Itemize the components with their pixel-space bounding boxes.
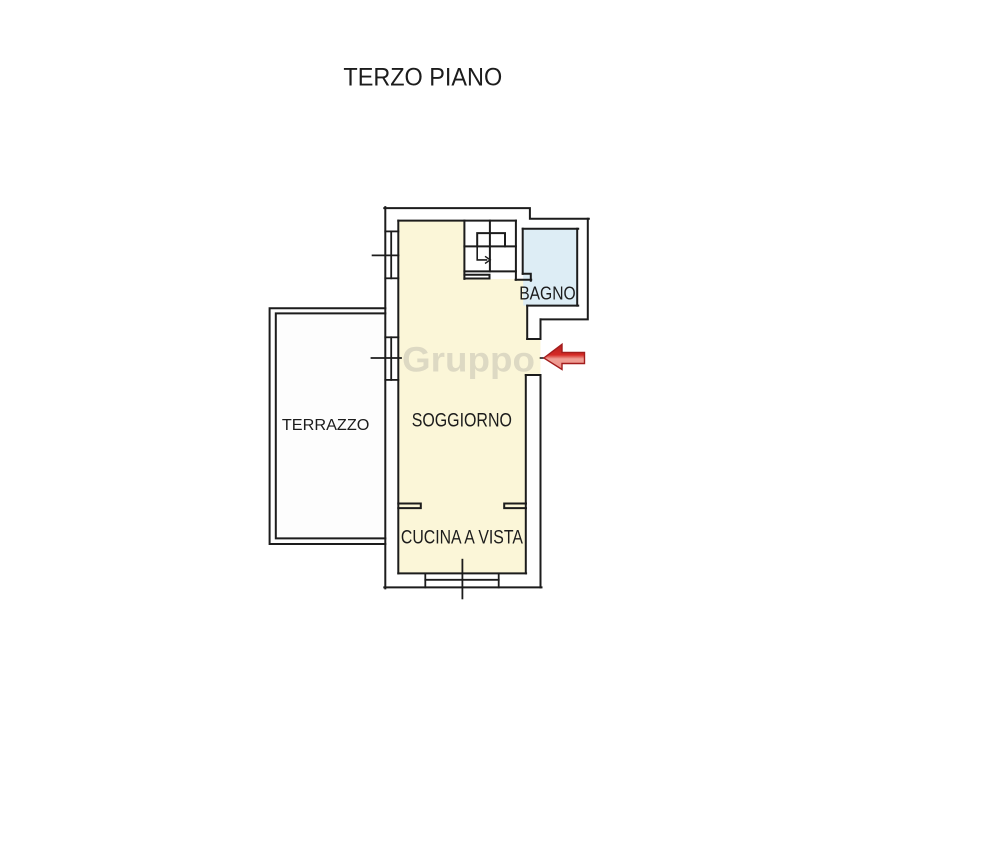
svg-text:CUCINA A VISTA: CUCINA A VISTA bbox=[401, 527, 523, 548]
svg-text:Gruppo: Gruppo bbox=[402, 341, 535, 380]
svg-text:SOGGIORNO: SOGGIORNO bbox=[412, 409, 512, 431]
svg-text:TERRAZZO: TERRAZZO bbox=[282, 417, 370, 434]
svg-text:TERZO PIANO: TERZO PIANO bbox=[343, 63, 502, 91]
svg-text:BAGNO: BAGNO bbox=[519, 284, 576, 304]
